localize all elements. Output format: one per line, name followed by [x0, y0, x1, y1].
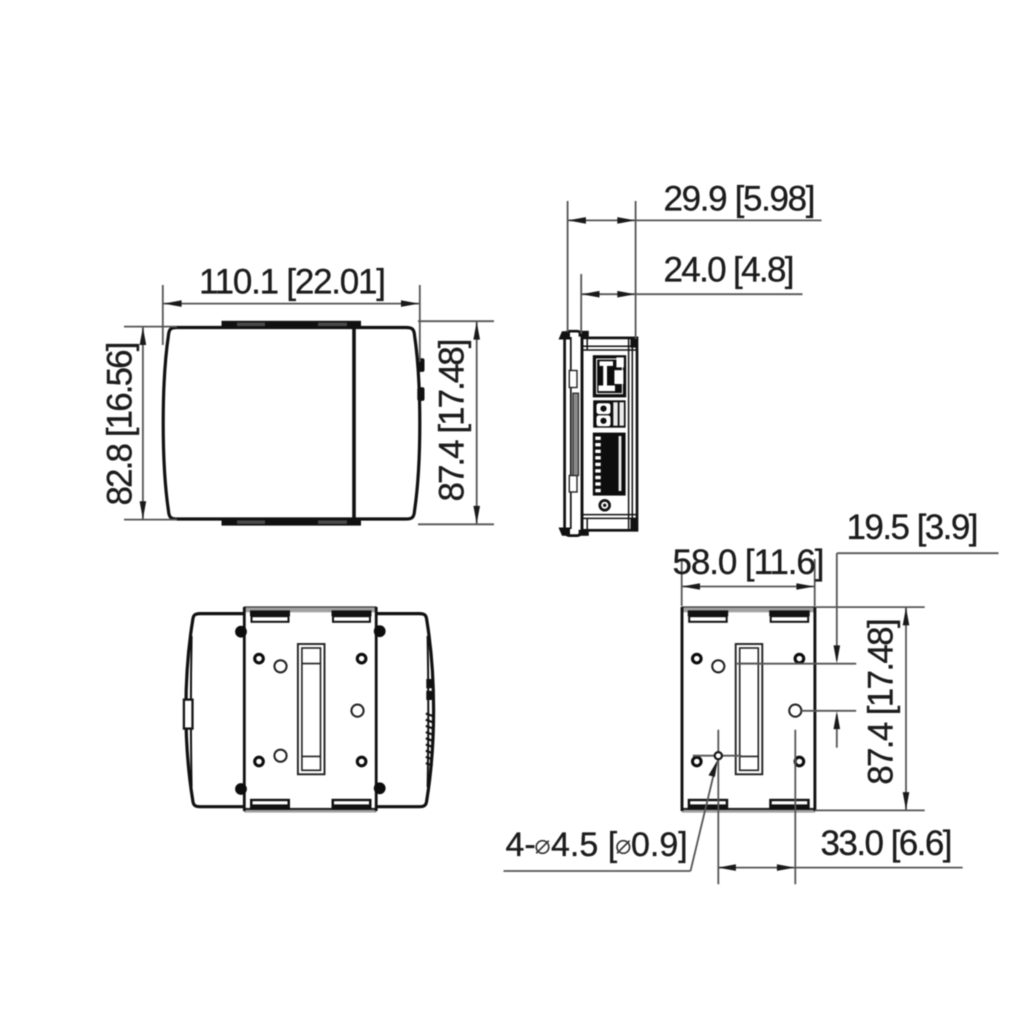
svg-text:0.9]: 0.9] — [631, 826, 688, 864]
svg-text:24.0 [4.8]: 24.0 [4.8] — [664, 251, 795, 290]
svg-text:82.8 [16.56]: 82.8 [16.56] — [100, 342, 139, 506]
svg-text:19.5 [3.9]: 19.5 [3.9] — [847, 508, 979, 547]
svg-text:4-: 4- — [506, 826, 536, 864]
svg-text:87.4 [17.48]: 87.4 [17.48] — [432, 339, 471, 502]
svg-text:58.0 [11.6]: 58.0 [11.6] — [673, 543, 825, 582]
svg-text:110.1 [22.01]: 110.1 [22.01] — [199, 263, 386, 302]
svg-text:33.0 [6.6]: 33.0 [6.6] — [821, 824, 953, 863]
svg-text:4.5 [: 4.5 [ — [551, 826, 618, 864]
svg-text:29.9 [5.98]: 29.9 [5.98] — [664, 180, 816, 219]
svg-text:87.4 [17.48]: 87.4 [17.48] — [861, 618, 900, 785]
